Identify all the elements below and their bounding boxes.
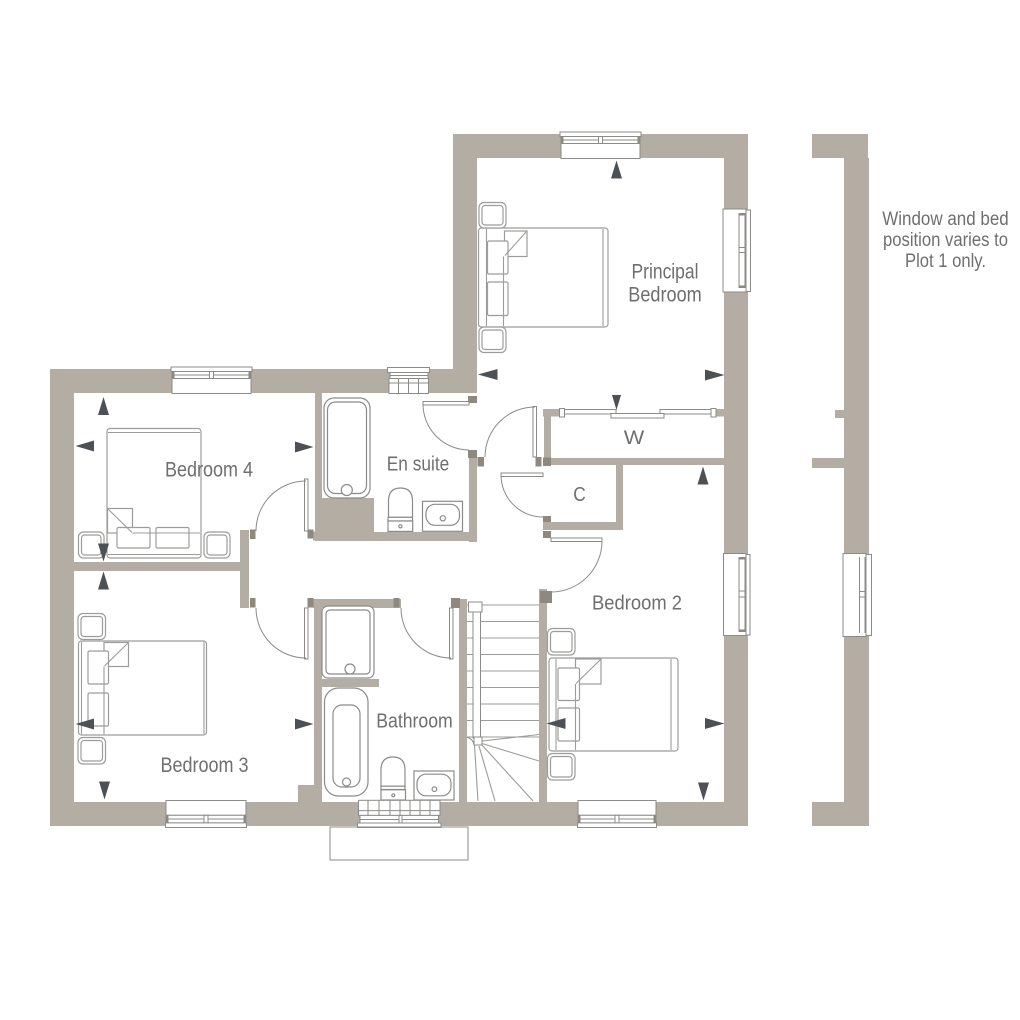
svg-text:Bathroom: Bathroom <box>376 711 453 733</box>
svg-text:C: C <box>573 484 586 506</box>
svg-text:Plot 1 only.: Plot 1 only. <box>905 251 986 272</box>
svg-text:En suite: En suite <box>387 454 450 476</box>
svg-text:Bedroom 3: Bedroom 3 <box>161 753 249 777</box>
svg-text:position varies to: position varies to <box>883 230 1008 251</box>
svg-text:Window and bed: Window and bed <box>882 209 1009 230</box>
svg-text:W: W <box>624 427 645 449</box>
svg-text:Principal: Principal <box>632 261 699 284</box>
svg-text:Bedroom 4: Bedroom 4 <box>165 458 253 482</box>
svg-text:Bedroom 2: Bedroom 2 <box>592 592 682 615</box>
svg-text:Bedroom: Bedroom <box>628 284 702 307</box>
